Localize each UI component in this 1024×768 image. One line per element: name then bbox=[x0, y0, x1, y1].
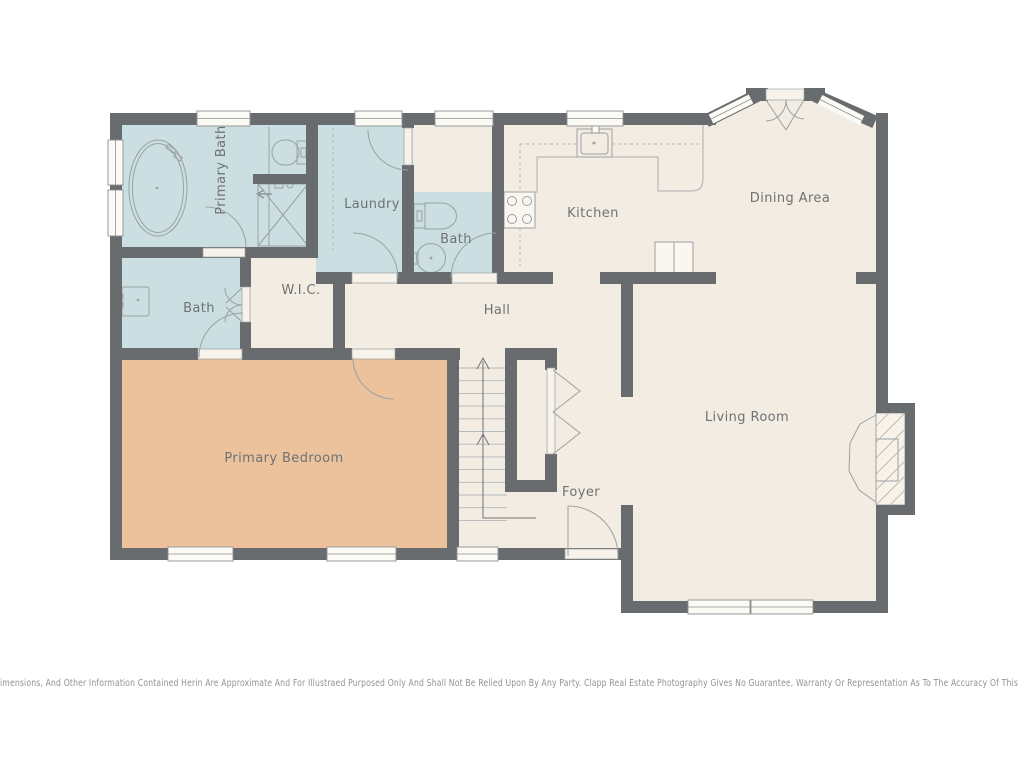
room-label-wic: W.I.C. bbox=[281, 283, 320, 298]
window bbox=[108, 190, 123, 236]
room-label-kitchen: Kitchen bbox=[567, 206, 619, 221]
door-threshold bbox=[565, 549, 618, 559]
window bbox=[168, 547, 233, 561]
stove bbox=[504, 192, 535, 228]
room-label-hall: Hall bbox=[484, 303, 511, 318]
window bbox=[688, 600, 750, 614]
door-threshold bbox=[203, 248, 245, 257]
door-threshold bbox=[452, 273, 497, 283]
window bbox=[108, 140, 123, 185]
floor-plan: Primary Bath Laundry Bath Kitchen Dining… bbox=[0, 0, 1024, 768]
door-threshold bbox=[242, 287, 250, 322]
window bbox=[457, 547, 498, 561]
room-label-dining: Dining Area bbox=[750, 191, 830, 206]
disclaimer-text: imensions, And Other Information Contain… bbox=[0, 678, 1018, 689]
room-label-living: Living Room bbox=[705, 410, 789, 425]
room-bath-left bbox=[116, 253, 245, 356]
door-threshold bbox=[766, 89, 804, 100]
room-label-bath-upper: Bath bbox=[440, 232, 472, 247]
room-label-primary-bedroom: Primary Bedroom bbox=[224, 451, 343, 466]
window bbox=[327, 547, 396, 561]
door-threshold bbox=[404, 128, 412, 165]
window bbox=[567, 111, 623, 126]
door-threshold bbox=[352, 273, 397, 283]
floor-plan-page: Primary Bath Laundry Bath Kitchen Dining… bbox=[0, 0, 1024, 768]
window bbox=[197, 111, 250, 126]
window bbox=[751, 600, 813, 614]
room-label-bath-left: Bath bbox=[183, 301, 215, 316]
room-label-foyer: Foyer bbox=[562, 485, 600, 500]
window bbox=[435, 111, 493, 126]
room-label-primary-bath: Primary Bath bbox=[214, 125, 229, 214]
door-threshold bbox=[198, 349, 242, 359]
dining-cabinet bbox=[655, 242, 693, 276]
door-threshold bbox=[352, 349, 395, 359]
room-label-laundry: Laundry bbox=[344, 197, 400, 212]
window bbox=[355, 111, 402, 126]
